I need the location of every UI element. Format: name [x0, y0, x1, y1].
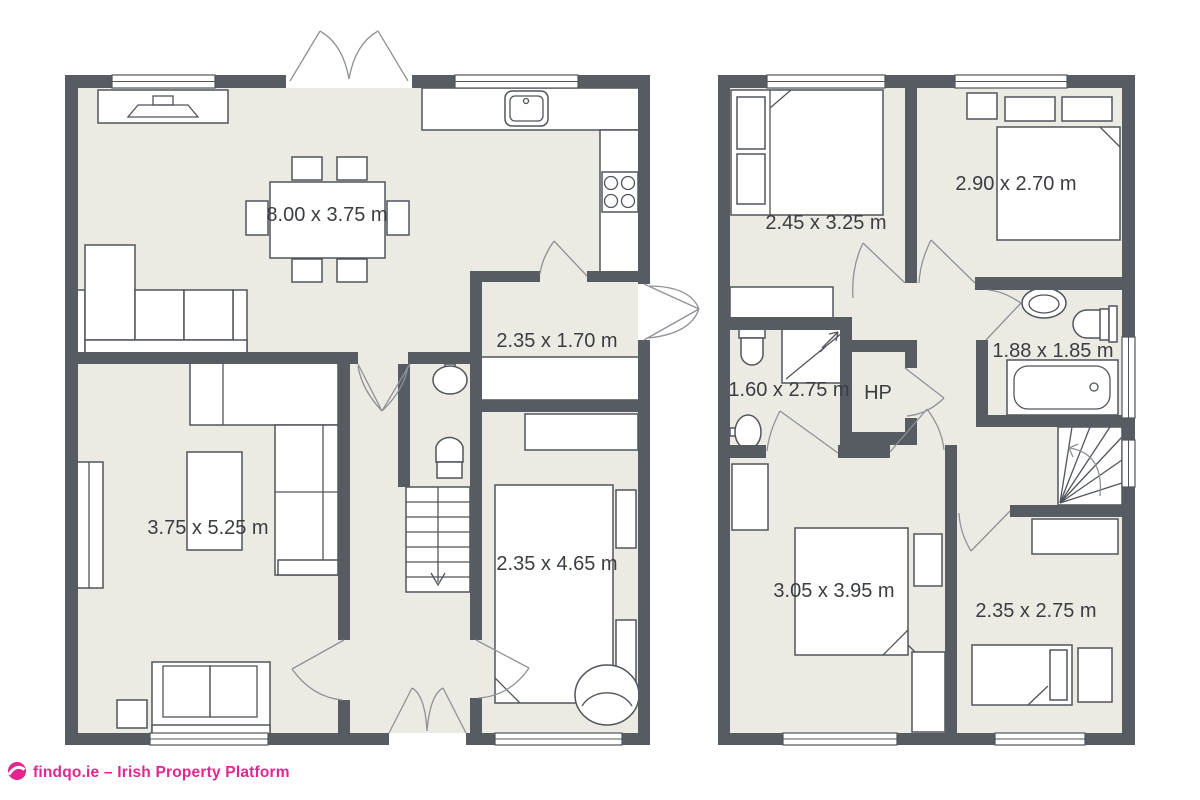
first-floor-plan: 2.45 x 3.25 m 2.90 x 2.70 m 1.60 x 2.75 …: [718, 75, 1135, 745]
room-label-kitchen-dining: 8.00 x 3.75 m: [266, 204, 387, 226]
bed-front: [731, 90, 883, 215]
bookshelf: [75, 462, 103, 588]
footer-brand: findqo.ie – Irish Property Platform: [8, 762, 290, 781]
room-label-bedroom-rear: 2.90 x 2.70 m: [955, 173, 1076, 195]
shower-room-toilet: [739, 325, 765, 365]
staircase-down: [406, 487, 470, 592]
room-label-hot-press: HP: [864, 382, 892, 404]
room-label-bedroom-ground: 2.35 x 4.65 m: [496, 553, 617, 575]
bed-single: [972, 645, 1112, 705]
shower-enclosure: [782, 325, 844, 383]
radiator-cabinet: [732, 464, 768, 530]
sofa-small: [152, 662, 270, 738]
room-label-bathroom: 1.88 x 1.85 m: [992, 340, 1113, 362]
armchair: [575, 665, 639, 725]
footer-brand-text: findqo.ie – Irish Property Platform: [33, 764, 290, 781]
room-label-bedroom-front: 2.45 x 3.25 m: [765, 212, 886, 234]
room-label-bedroom-single: 2.35 x 2.75 m: [975, 600, 1096, 622]
ground-floor-plan: 8.00 x 3.75 m 2.35 x 1.70 m 3.75 x 5.25 …: [65, 31, 699, 745]
bedroom-wardrobe: [525, 414, 638, 450]
hall-closet: [477, 357, 640, 400]
floor-plan-page: 8.00 x 3.75 m 2.35 x 1.70 m 3.75 x 5.25 …: [0, 0, 1200, 800]
dresser: [730, 287, 833, 318]
room-label-entrance-hall: 2.35 x 1.70 m: [496, 330, 617, 352]
room-label-living-room: 3.75 x 5.25 m: [147, 517, 268, 539]
side-table: [117, 700, 147, 728]
desk: [1032, 519, 1118, 554]
staircase-up: [1058, 427, 1122, 505]
room-label-bedroom-master: 3.05 x 3.95 m: [773, 580, 894, 602]
wc-toilet: [436, 437, 463, 478]
bathtub: [1007, 360, 1118, 415]
bathroom-toilet: [1073, 306, 1117, 342]
tv-unit: [98, 90, 228, 123]
floor-plan-drawing: 8.00 x 3.75 m 2.35 x 1.70 m 3.75 x 5.25 …: [0, 0, 1200, 800]
kitchen-sink: [505, 91, 548, 126]
room-label-shower-room: 1.60 x 2.75 m: [728, 379, 849, 401]
stove-hob: [602, 172, 638, 212]
